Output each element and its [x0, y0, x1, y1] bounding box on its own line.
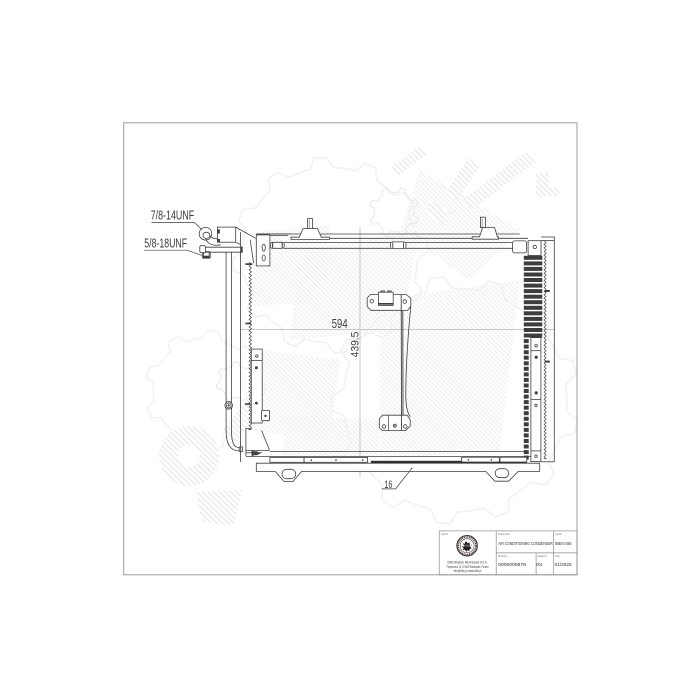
- svg-text:Diagram No.: Diagram No.: [538, 554, 548, 558]
- svg-text:439.5: 439.5: [350, 332, 362, 358]
- svg-text:Date: Date: [555, 554, 560, 558]
- svg-text:5/8-18UNF: 5/8-18UNF: [144, 236, 187, 250]
- svg-text:Inspector: Inspector: [441, 532, 448, 536]
- svg-text:0005000878: 0005000878: [498, 562, 526, 567]
- svg-text:Symbol: Symbol: [555, 532, 562, 536]
- svg-text:Product name: Product name: [498, 532, 510, 536]
- svg-text:info@dbk.pl www.dbk.pl: info@dbk.pl www.dbk.pl: [453, 569, 481, 573]
- svg-text:7/8-14UNF: 7/8-14UNF: [151, 209, 195, 223]
- svg-text:01/2025: 01/2025: [555, 562, 573, 567]
- svg-text:OE Number: OE Number: [498, 554, 508, 558]
- svg-text:001: 001: [536, 562, 543, 567]
- svg-text:594: 594: [332, 316, 348, 331]
- svg-text:86EKV364: 86EKV364: [555, 541, 572, 546]
- svg-text:AIR CONDITIONING CONDENSER: AIR CONDITIONING CONDENSER: [498, 541, 553, 546]
